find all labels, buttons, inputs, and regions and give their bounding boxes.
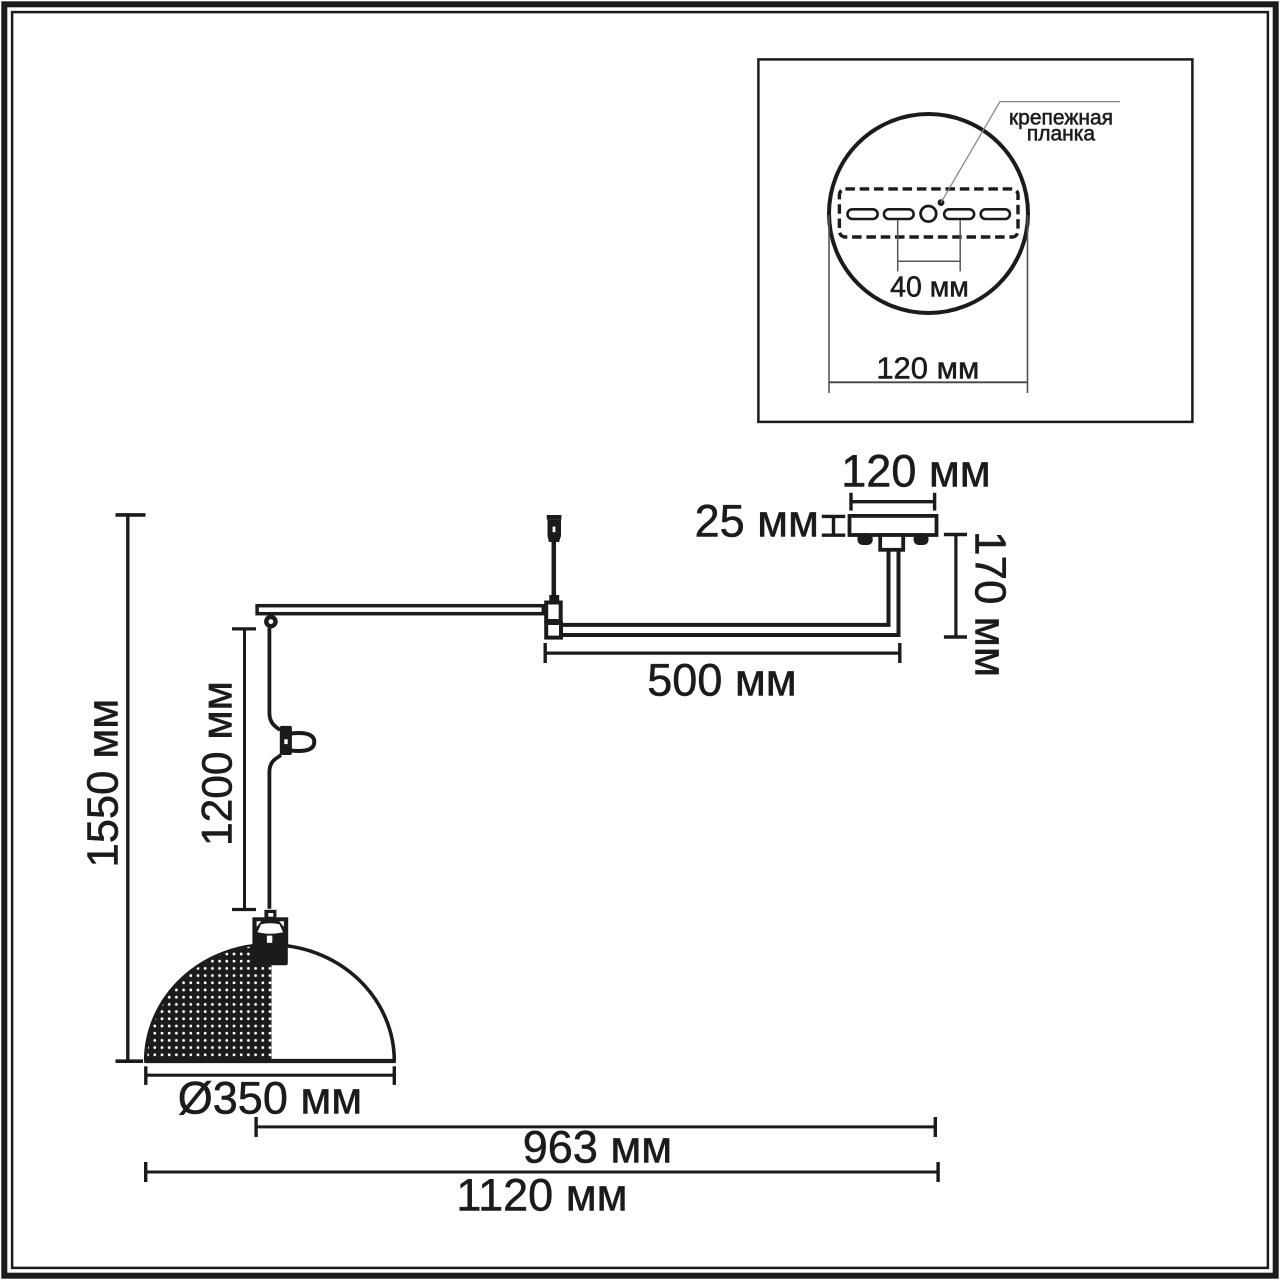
svg-text:1120 мм: 1120 мм bbox=[456, 1169, 627, 1220]
svg-text:963 мм: 963 мм bbox=[523, 1121, 672, 1172]
svg-text:120 мм: 120 мм bbox=[841, 446, 990, 497]
svg-text:Ø350 мм: Ø350 мм bbox=[178, 1073, 362, 1124]
svg-text:1550 мм: 1550 мм bbox=[80, 699, 128, 868]
svg-text:25 мм: 25 мм bbox=[695, 496, 819, 547]
svg-text:170 мм: 170 мм bbox=[966, 531, 1015, 677]
svg-text:1200 мм: 1200 мм bbox=[195, 681, 242, 846]
svg-text:120 мм: 120 мм bbox=[876, 351, 979, 386]
svg-text:40 мм: 40 мм bbox=[890, 272, 969, 304]
svg-text:планка: планка bbox=[1027, 123, 1096, 146]
svg-text:500 мм: 500 мм bbox=[647, 655, 796, 706]
